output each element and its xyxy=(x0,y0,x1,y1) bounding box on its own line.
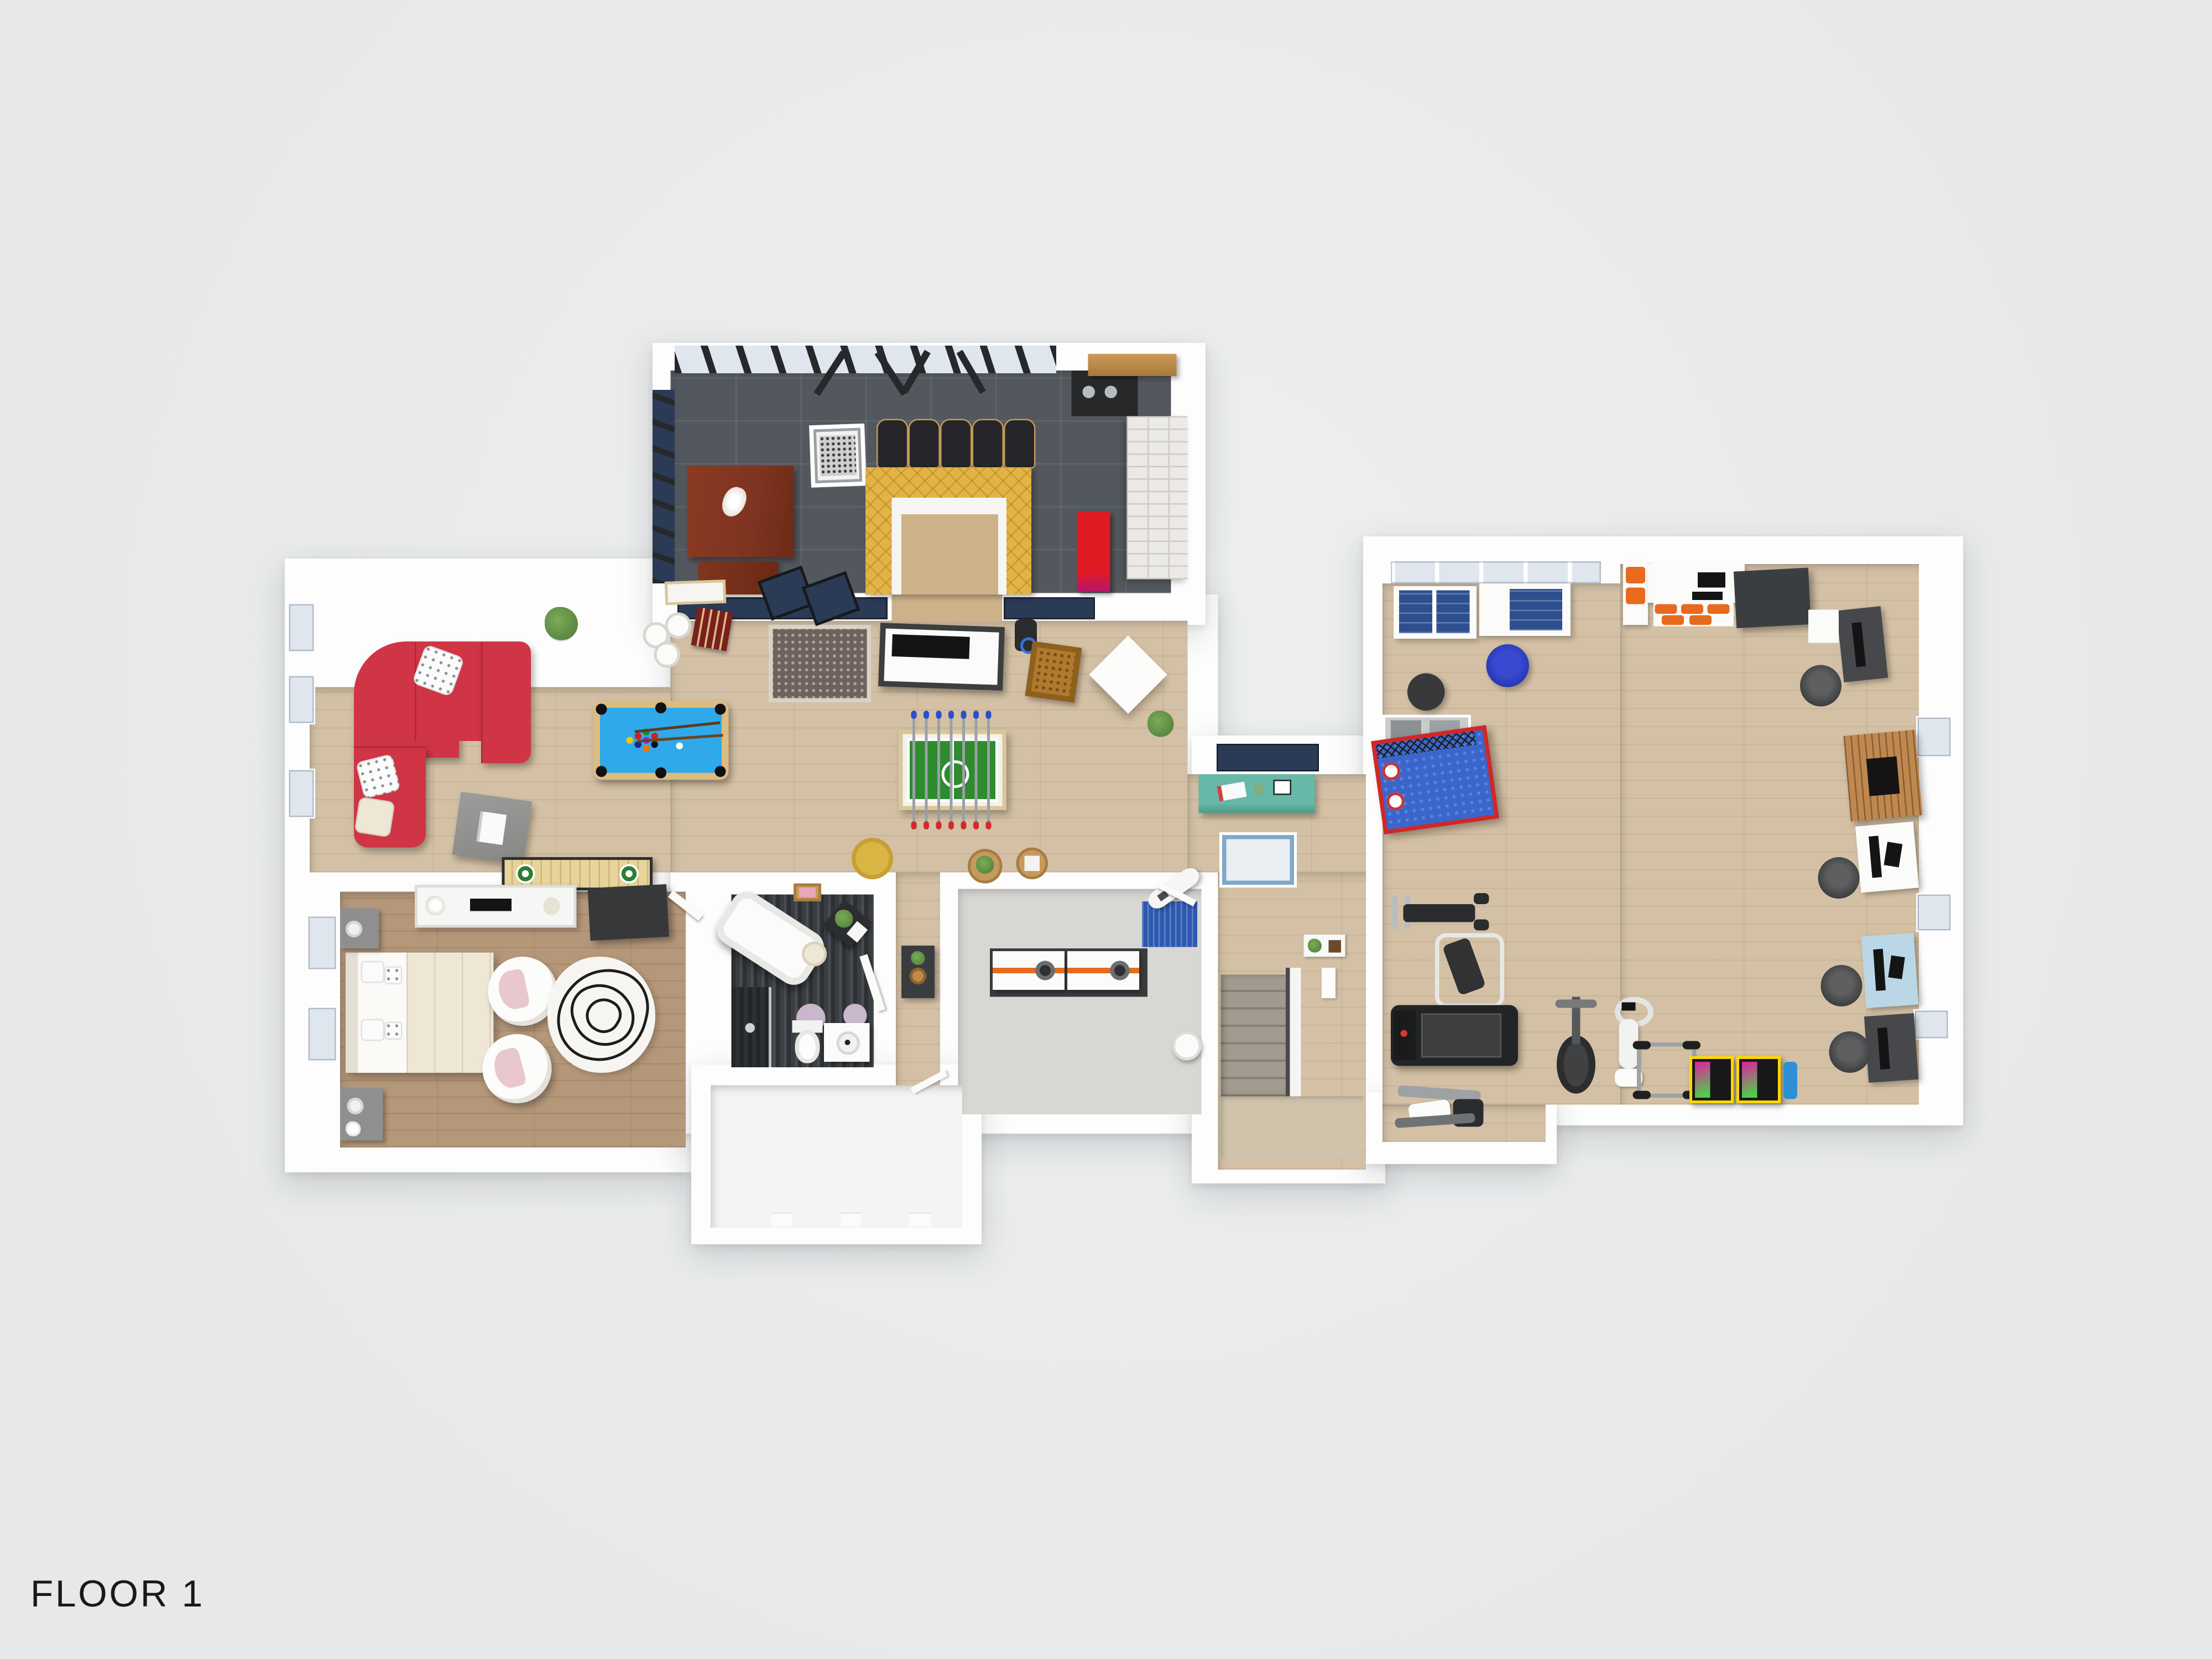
chair-pillow-pink xyxy=(495,968,530,1012)
bed-pillow xyxy=(361,961,385,983)
wall-pilaster xyxy=(771,1214,792,1227)
dumbbell-rack xyxy=(1637,1042,1697,1098)
bunk-bed-blue xyxy=(1371,725,1499,834)
headboard xyxy=(346,953,358,1073)
sink-basin-icon xyxy=(1083,386,1095,399)
theater-chair-3 xyxy=(940,419,972,469)
drain-icon xyxy=(745,1023,755,1033)
foosball-rod xyxy=(925,719,928,821)
fireplace-hearth-icon xyxy=(1866,757,1900,796)
bed-logo-icon xyxy=(1381,761,1401,781)
stair-landing xyxy=(1221,1097,1364,1159)
pouf-white xyxy=(665,613,692,639)
office-desk-white xyxy=(1394,586,1477,639)
bar-entry-floor xyxy=(892,593,1003,623)
desk-dark xyxy=(1837,606,1888,682)
floorplan-stage: FLOOR 1 xyxy=(0,0,2212,1659)
monitor-icon xyxy=(1873,949,1886,991)
office-chair xyxy=(1818,857,1860,899)
pouf-cream xyxy=(802,942,827,967)
nightstand xyxy=(340,1088,383,1141)
gym-door-pillar xyxy=(1322,968,1335,998)
window-sill xyxy=(307,915,337,971)
monitor-icon xyxy=(1869,836,1882,878)
office-chair xyxy=(1821,965,1863,1006)
rug-flower-white xyxy=(547,957,655,1073)
pool-pocket-icon xyxy=(715,704,726,715)
washer-drum-icon xyxy=(1110,961,1130,980)
bar-wall-shelf xyxy=(1088,354,1177,376)
magazine-icon xyxy=(1217,781,1246,801)
pouf-jute xyxy=(968,849,1003,884)
fridge-cabinet-dark xyxy=(1734,568,1811,628)
window-sill xyxy=(288,603,315,653)
elliptical-machine xyxy=(1553,997,1603,1097)
laptop-icon xyxy=(1888,956,1905,979)
wardrobe-dark xyxy=(588,884,669,941)
sofa-pillow xyxy=(354,796,395,837)
treadmill-console-light-icon xyxy=(1401,1030,1408,1037)
window-sill xyxy=(288,675,315,724)
wicker-basket xyxy=(1025,641,1082,703)
pool-pocket-icon xyxy=(596,704,607,715)
arcade-screen-icon xyxy=(1695,1062,1710,1098)
washing-machine xyxy=(993,951,1065,990)
foosball-rod xyxy=(937,719,940,821)
weight-bench xyxy=(1392,893,1489,932)
magazine-rack xyxy=(794,884,821,902)
arcade-machine-red xyxy=(1077,512,1110,592)
rug-dark-tweed xyxy=(769,625,871,702)
bar-doormat xyxy=(809,424,867,488)
washer-drum-icon xyxy=(1036,961,1055,980)
dresser-flowers-icon xyxy=(426,896,445,915)
faucet-icon xyxy=(845,1040,851,1045)
arcade-screen-icon xyxy=(1742,1062,1757,1098)
bed-pillow xyxy=(384,1022,403,1040)
bed-blanket xyxy=(406,953,494,1073)
bed-logo-icon xyxy=(1385,791,1406,812)
stair-railing xyxy=(1286,968,1290,1100)
stairs-console xyxy=(1304,935,1345,957)
pouf-jute xyxy=(1016,848,1048,880)
teal-sideboard xyxy=(1199,774,1315,813)
pool-pocket-icon xyxy=(655,768,666,779)
washing-machine xyxy=(1067,951,1139,990)
kitchenette-stools-orange xyxy=(1653,603,1734,627)
hall-fireplace-console xyxy=(901,946,935,998)
foosball-rod xyxy=(962,719,965,821)
doormat-living xyxy=(665,580,726,605)
office-desk-white xyxy=(1479,583,1571,636)
bar-south-window-sill-right xyxy=(1004,597,1095,619)
bath-plant-icon xyxy=(835,910,853,928)
arcade-cabinet xyxy=(1689,1056,1734,1103)
lamp-icon xyxy=(347,1098,364,1114)
plant-icon xyxy=(911,951,925,965)
plant-icon xyxy=(976,856,994,874)
foosball-table xyxy=(899,730,1006,810)
window-sill xyxy=(1916,716,1952,758)
bar-north-windows xyxy=(675,346,1056,373)
rug-round-yellow xyxy=(852,838,893,879)
pool-pocket-icon xyxy=(596,766,607,777)
chair-pillow-pink xyxy=(491,1046,527,1091)
shower-area xyxy=(732,987,772,1067)
monitor-icon xyxy=(1877,1027,1890,1070)
pool-pocket-icon xyxy=(655,702,666,713)
hall-window-sill xyxy=(1217,744,1319,771)
teddy-icon xyxy=(544,898,560,916)
desk-dark xyxy=(1864,1013,1918,1083)
bedroom-dresser xyxy=(415,885,577,928)
incline-press-machine xyxy=(1435,933,1504,1008)
decor-box-icon xyxy=(1329,940,1342,953)
staircase xyxy=(1221,975,1287,1097)
theater-chair-2 xyxy=(909,419,941,469)
office-chair-blue xyxy=(1486,644,1530,687)
nightstand xyxy=(340,909,379,949)
wood-round-icon xyxy=(910,968,926,984)
fireplace-wood-slat xyxy=(1843,730,1922,822)
leg-press-machine xyxy=(1392,1080,1489,1138)
sunken-bar-floor xyxy=(901,514,998,594)
sink-basin-icon xyxy=(1105,386,1118,399)
theater-chair-5 xyxy=(1004,419,1036,469)
bed-double xyxy=(346,953,494,1073)
theater-chair-4 xyxy=(972,419,1004,469)
bed-pillow xyxy=(361,1019,385,1041)
desk-mat-blue xyxy=(1399,591,1432,634)
tray-icon xyxy=(1692,592,1723,600)
potted-plant-icon xyxy=(545,607,578,640)
desk-pedestal xyxy=(1808,610,1839,643)
desk-mat-blue xyxy=(1437,591,1470,634)
treadmill xyxy=(1391,1005,1518,1066)
rug-light-blue xyxy=(1219,832,1297,888)
wall-pilaster xyxy=(841,1214,862,1227)
cue-rack xyxy=(691,607,733,651)
window-sill xyxy=(307,1006,337,1062)
kitchenette-cabinet xyxy=(1623,561,1648,625)
plant-small-icon xyxy=(1147,711,1174,737)
monitor-icon xyxy=(1851,622,1866,667)
desk-light-blue xyxy=(1861,933,1919,1008)
toilet-bowl xyxy=(795,1030,820,1063)
pool-table xyxy=(593,701,729,780)
window-sill xyxy=(1916,893,1952,932)
foosball-rod xyxy=(912,719,915,821)
gym-mat-blue xyxy=(1783,1062,1797,1099)
bar-sink-counter xyxy=(1072,371,1138,416)
foosball-rod xyxy=(950,719,953,821)
foosball-rod xyxy=(987,719,990,821)
desk-mat-blue xyxy=(1510,589,1562,630)
office-window-band xyxy=(1391,561,1601,583)
pouf-white xyxy=(654,641,681,668)
window-sill xyxy=(1913,1009,1949,1040)
lamp-icon xyxy=(346,921,362,937)
laundry-bin xyxy=(1172,1031,1202,1061)
bar-west-windows xyxy=(653,390,675,583)
floor-label: FLOOR 1 xyxy=(30,1573,205,1616)
wall-pilaster xyxy=(910,1214,931,1227)
pool-balls-icon xyxy=(627,737,634,744)
stair-stringer xyxy=(1290,968,1301,1100)
armchair-round xyxy=(483,1034,552,1103)
arcade-cabinet xyxy=(1736,1056,1781,1103)
laundry-rug-blue xyxy=(1142,901,1197,947)
pool-pocket-icon xyxy=(715,766,726,777)
ottoman-book-icon xyxy=(476,811,507,845)
bed-pillow xyxy=(384,967,403,985)
tv-screen-icon xyxy=(891,634,969,659)
dresser-decor-icon xyxy=(470,899,512,911)
kitchenette-counter xyxy=(1648,564,1745,603)
window-sill xyxy=(288,769,315,818)
laptop-icon xyxy=(1884,842,1902,867)
flowers-icon xyxy=(346,1121,361,1137)
bathroom-vanity xyxy=(824,1023,870,1062)
unfinished-room-floor xyxy=(711,1086,962,1228)
plant-icon xyxy=(1308,939,1322,953)
vase-icon xyxy=(1254,782,1264,795)
armchair-round xyxy=(488,957,557,1026)
desk-white xyxy=(1855,822,1919,893)
office-chair xyxy=(1829,1031,1871,1073)
office-chair xyxy=(1800,665,1841,707)
brick-chimney xyxy=(1127,416,1188,580)
round-side-table xyxy=(1407,674,1445,711)
theater-chair-1 xyxy=(877,419,909,469)
foosball-rod xyxy=(975,719,978,821)
tv-cabinet xyxy=(878,623,1005,691)
coffee-machine-icon xyxy=(1698,572,1725,588)
